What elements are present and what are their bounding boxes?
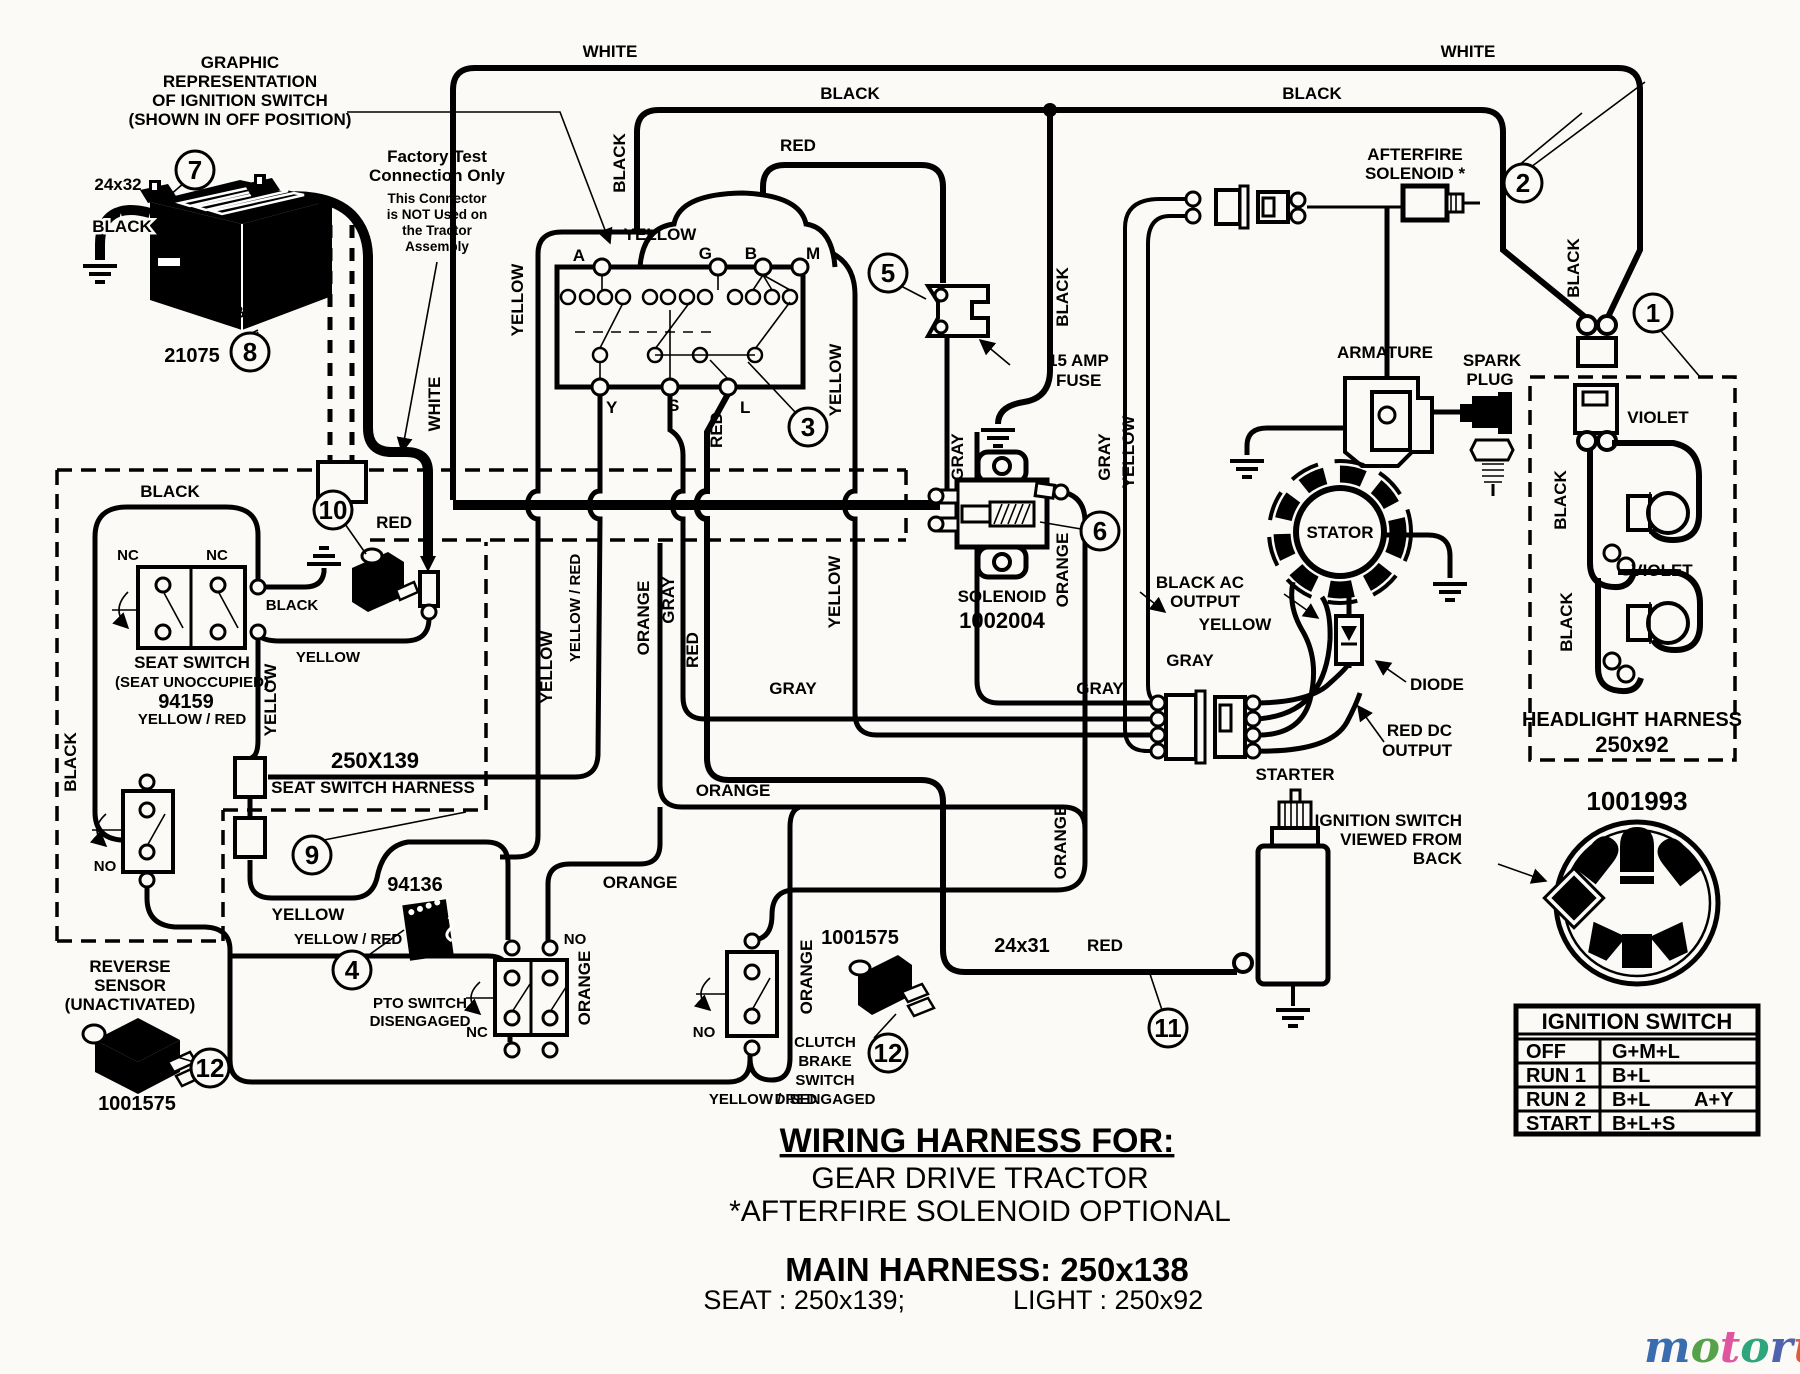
wire-label: BLACK	[1557, 592, 1576, 652]
wire-label: WHITE	[583, 42, 638, 61]
ground-icon	[1433, 584, 1467, 600]
wire-label: ORANGE	[1051, 805, 1070, 880]
battery-cable-size: 24x32	[94, 175, 141, 194]
terminal-a: A	[573, 246, 585, 265]
callout-1: 1	[1646, 298, 1660, 328]
watermark: motoruf.de	[1644, 1322, 1800, 1373]
table-row-circuit: B+L+S	[1612, 1113, 1675, 1135]
wire-label: ORANGE	[603, 873, 678, 892]
footer-title: WIRING HARNESS FOR:	[780, 1122, 1175, 1160]
wire-label: ORANGE	[634, 581, 653, 656]
wire-label: GRAY	[659, 576, 678, 624]
wire-label: WHITE	[1441, 42, 1496, 61]
spark-plug-label: SPARK	[1463, 351, 1522, 370]
reverse-sensor-label: REVERSE	[89, 957, 170, 976]
wire-label: RED	[707, 412, 726, 448]
spark-plug	[1460, 392, 1513, 496]
wire-label: BLACK	[610, 133, 629, 193]
callout-11: 11	[1154, 1013, 1182, 1043]
callout-5: 5	[881, 258, 895, 288]
table-row-mode: OFF	[1526, 1041, 1566, 1063]
wire-label: YELLOW	[272, 905, 346, 924]
note-factory-sub: the Tractor	[402, 223, 473, 238]
battery-part: 21075	[164, 345, 220, 367]
table-row-circuit: B+L	[1612, 1065, 1650, 1087]
wire-label: RED	[376, 513, 412, 532]
fuse-label: FUSE	[1056, 371, 1101, 390]
table-row-circuit: B+L	[1612, 1089, 1650, 1111]
reverse-sensor-label: (UNACTIVATED)	[65, 995, 196, 1014]
red-dc-label: OUTPUT	[1382, 741, 1453, 760]
table-row-extra: A+Y	[1694, 1089, 1734, 1111]
wire-yellow-connector	[1148, 216, 1186, 703]
wire-label: BLACK	[1551, 470, 1570, 530]
note-graphic-rep: OF IGNITION SWITCH	[152, 91, 328, 110]
reverse-sensor-label: SENSOR	[94, 976, 166, 995]
conn-terminal-l: L	[1632, 945, 1642, 962]
wire-label: YELLOW	[1119, 415, 1138, 489]
wire-label: BLACK	[61, 732, 80, 792]
pto-part: 94136	[387, 874, 443, 896]
seat-switch-wire: YELLOW / RED	[138, 711, 247, 728]
battery: BATTERY	[140, 174, 332, 341]
headlight-harness-part: 250x92	[1595, 732, 1668, 757]
contact-no: NO	[564, 931, 587, 948]
arrowhead	[420, 556, 436, 572]
contact-nc: NC	[117, 547, 139, 564]
wiring-diagram-page: BATTERY A G B M Y S L	[0, 0, 1800, 1374]
callout-4: 4	[345, 955, 360, 985]
wire-label: ORANGE	[696, 781, 771, 800]
footer: WIRING HARNESS FOR: GEAR DRIVE TRACTOR *…	[703, 1122, 1231, 1315]
wire-label: RED	[780, 136, 816, 155]
terminal-b: B	[745, 244, 757, 263]
wire-label: BLACK	[92, 217, 152, 236]
starter-label: STARTER	[1255, 765, 1334, 784]
terminal-s: S	[668, 396, 679, 415]
wire-label: GRAY	[948, 433, 967, 481]
footer-line1: GEAR DRIVE TRACTOR	[811, 1162, 1148, 1195]
callout-7: 7	[188, 155, 202, 185]
terminal-m: M	[806, 244, 820, 263]
clutch-component	[850, 955, 934, 1016]
wire-label: GRAY	[769, 679, 817, 698]
wire-label: ORANGE	[575, 951, 594, 1026]
ign-connector-part: 1001993	[1586, 786, 1687, 816]
ign-view-label: IGNITION SWITCH	[1315, 811, 1462, 830]
ground-icon	[1230, 461, 1264, 477]
contact-nc: NC	[466, 1024, 488, 1041]
contact-no: NO	[94, 858, 117, 875]
wire-label: GRAY	[1076, 679, 1124, 698]
note-graphic-rep: (SHOWN IN OFF POSITION)	[129, 110, 352, 129]
wire-label: RED	[683, 632, 702, 668]
watermark-logo: motoruf.de	[1644, 1322, 1800, 1373]
seat-switch-label: (SEAT UNOCCUPIED)	[115, 674, 269, 691]
wire-yellow-box	[251, 636, 258, 758]
callout-9: 9	[305, 840, 319, 870]
armature	[1345, 378, 1432, 466]
pto-label: DISENGAGED	[370, 1013, 471, 1030]
terminal-l: L	[740, 398, 750, 417]
wire-label: ORANGE	[797, 940, 816, 1015]
diode	[1336, 616, 1362, 664]
pto-label: PTO SWITCH	[373, 995, 467, 1012]
conn-terminal-m: M	[1630, 847, 1644, 866]
callout-10: 10	[319, 495, 348, 525]
wire-label: YELLOW	[537, 630, 556, 704]
wire-label: BLACK	[1053, 267, 1072, 327]
spark-plug-label: PLUG	[1466, 370, 1513, 389]
callout-8: 8	[243, 337, 257, 367]
terminal-g: G	[699, 244, 712, 263]
wire-label: YELLOW / RED	[567, 554, 584, 663]
ignition-connector: M A S Y G L B	[1544, 822, 1718, 984]
ignition-table: IGNITION SWITCH OFF G+M+L RUN 1 B+L RUN …	[1516, 1006, 1758, 1135]
wire-yelred-2	[230, 958, 750, 1082]
wire-label: YELLOW	[508, 263, 527, 337]
seat-switch-part: 94159	[158, 691, 214, 713]
battery-mark	[158, 258, 180, 266]
factory-test-dashed-wires	[330, 225, 352, 462]
footer-line2: *AFTERFIRE SOLENOID OPTIONAL	[729, 1195, 1231, 1228]
starter-cable-size: 24x31	[994, 935, 1050, 957]
contact-nc: NC	[206, 547, 228, 564]
callout-3: 3	[801, 412, 815, 442]
black-ac-label: OUTPUT	[1170, 592, 1241, 611]
wiring-diagram: BATTERY A G B M Y S L	[0, 0, 1800, 1374]
table-row-circuit: G+M+L	[1612, 1041, 1680, 1063]
wire-label: VIOLET	[1631, 561, 1693, 580]
seat-switch	[112, 567, 265, 648]
red-dc-label: RED DC	[1387, 721, 1452, 740]
reverse-sensor-component	[83, 1018, 204, 1094]
table-row-mode: START	[1526, 1113, 1591, 1135]
solenoid-part: 1002004	[959, 608, 1045, 633]
wire-rev-down	[147, 878, 230, 958]
clutch-label: SWITCH	[795, 1072, 854, 1089]
wire-label: WHITE	[425, 377, 444, 432]
footer-main-harness: MAIN HARNESS: 250x138	[785, 1251, 1188, 1288]
wire-label: BLACK	[1564, 238, 1583, 298]
stator-label: STATOR	[1306, 523, 1373, 542]
wire-label: BLACK	[820, 84, 880, 103]
wire-label: YELLOW	[825, 555, 844, 629]
headlight-harness	[1575, 316, 1700, 691]
ground-icon	[83, 266, 117, 282]
clutch-part: 1001575	[821, 927, 899, 949]
wire-orange-solenoid	[754, 492, 1085, 940]
table-title: IGNITION SWITCH	[1542, 1009, 1733, 1034]
clutch-label: CLUTCH	[794, 1034, 856, 1051]
pto-component	[402, 898, 457, 961]
wire-label: ORANGE	[1053, 533, 1072, 608]
starter-cable-color: RED	[1087, 936, 1123, 955]
diode-label: DIODE	[1410, 675, 1464, 694]
seat-switch-label: SEAT SWITCH	[134, 653, 250, 672]
ign-view-label: VIEWED FROM	[1340, 830, 1462, 849]
black-ac-label: BLACK AC	[1156, 573, 1244, 592]
callout-2: 2	[1516, 168, 1530, 198]
footer-light: LIGHT : 250x92	[1013, 1285, 1203, 1315]
ground-icon	[307, 548, 341, 564]
wire-label: YELLOW	[1199, 615, 1273, 634]
table-row-mode: RUN 2	[1526, 1089, 1586, 1111]
callout-6: 6	[1093, 516, 1107, 546]
note-factory-sub: Assembly	[405, 239, 469, 254]
note-factory-sub: is NOT Used on	[387, 207, 488, 222]
note-factory-sub: This Connector	[387, 191, 487, 206]
armature-label: ARMATURE	[1337, 343, 1433, 362]
clutch-label: BRAKE	[798, 1053, 851, 1070]
callout-12: 12	[196, 1053, 225, 1083]
seat-harness-part: 250X139	[331, 748, 419, 773]
fuse-label: 15 AMP	[1048, 351, 1109, 370]
wire-seat-ground	[258, 568, 324, 587]
note-factory-test: Factory Test	[387, 147, 487, 166]
wire-label: BLACK	[1282, 84, 1342, 103]
wire-label: GRAY	[1166, 651, 1214, 670]
fuse	[928, 286, 988, 336]
reverse-sensor-part: 1001575	[98, 1093, 176, 1115]
wire-label: YELLOW	[624, 225, 698, 244]
solenoid-label: SOLENOID	[958, 587, 1047, 606]
clutch-label: DISENGAGED	[775, 1091, 876, 1108]
footer-seat: SEAT : 250x139;	[703, 1285, 905, 1315]
afterfire-label: AFTERFIRE	[1367, 145, 1462, 164]
afterfire-label: SOLENOID *	[1365, 164, 1466, 183]
callout-12b: 12	[874, 1038, 903, 1068]
wire-label: BLACK	[266, 597, 319, 614]
note-graphic-rep: GRAPHIC	[201, 53, 279, 72]
ign-view-label: BACK	[1413, 849, 1463, 868]
wire-black-ground-hook	[998, 110, 1050, 424]
ground-icon	[1276, 1010, 1310, 1026]
terminal-y: Y	[606, 398, 618, 417]
wire-yellow-seat	[250, 842, 508, 940]
table-row-mode: RUN 1	[1526, 1065, 1586, 1087]
headlight-harness-label: HEADLIGHT HARNESS	[1522, 709, 1742, 731]
wire-label: YELLOW	[296, 649, 361, 666]
wire-label: YELLOW	[826, 343, 845, 417]
contact-no: NO	[693, 1024, 716, 1041]
wire-label: VIOLET	[1627, 408, 1689, 427]
note-graphic-rep: REPRESENTATION	[163, 72, 317, 91]
engine-connectors	[1151, 691, 1260, 763]
ground-icon	[981, 430, 1015, 446]
wire-label: GRAY	[1095, 433, 1114, 481]
wire-label: BLACK	[140, 482, 200, 501]
wire-red-diode	[1253, 663, 1349, 703]
wire-label: YELLOW / RED	[294, 931, 403, 948]
wire-armature-ground	[1247, 428, 1345, 455]
note-factory-test: Connection Only	[369, 166, 506, 185]
seat-harness-label: SEAT SWITCH HARNESS	[271, 778, 475, 797]
